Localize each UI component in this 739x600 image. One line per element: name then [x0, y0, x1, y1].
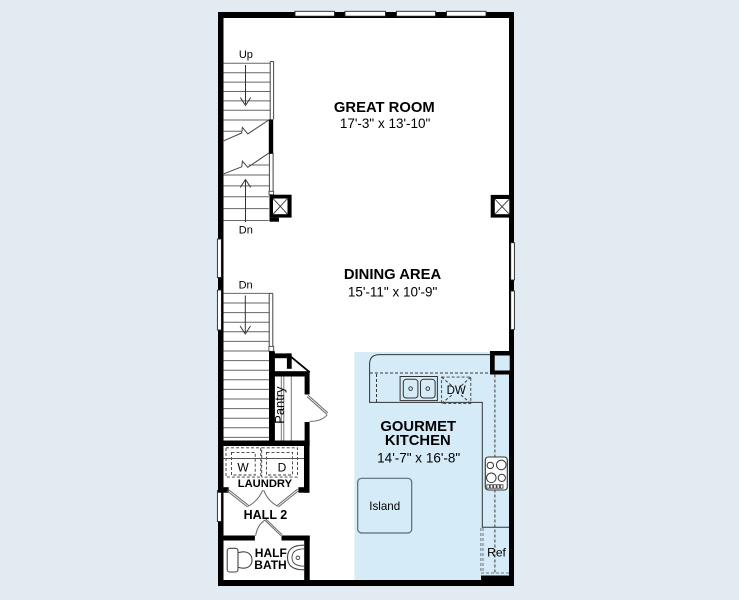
svg-text:14'-7" x 16'-8": 14'-7" x 16'-8"	[377, 451, 460, 466]
svg-text:Pantry: Pantry	[272, 386, 287, 424]
svg-text:BATH: BATH	[254, 558, 286, 572]
svg-text:Ref: Ref	[487, 546, 506, 560]
svg-text:W: W	[237, 461, 249, 475]
svg-text:Dn: Dn	[239, 280, 253, 292]
svg-text:15'-11" x 10'-9": 15'-11" x 10'-9"	[348, 284, 438, 299]
svg-text:17'-3" x 13'-10": 17'-3" x 13'-10"	[340, 116, 431, 131]
svg-text:DW: DW	[447, 385, 466, 397]
svg-text:KITCHEN: KITCHEN	[385, 433, 451, 449]
svg-text:GREAT ROOM: GREAT ROOM	[334, 100, 435, 116]
svg-text:HALL 2: HALL 2	[244, 508, 288, 522]
svg-text:Island: Island	[369, 500, 400, 513]
svg-text:D: D	[278, 461, 287, 475]
svg-text:DINING AREA: DINING AREA	[344, 267, 442, 283]
svg-text:Dn: Dn	[239, 225, 253, 237]
svg-text:LAUNDRY: LAUNDRY	[238, 478, 293, 490]
svg-text:Up: Up	[239, 49, 253, 61]
